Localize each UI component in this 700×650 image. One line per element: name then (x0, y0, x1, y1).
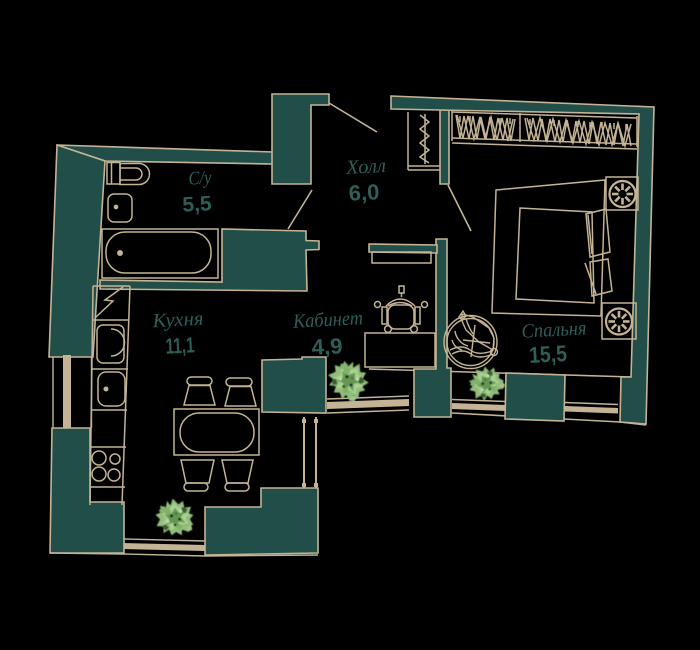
svg-text:Кабинет: Кабинет (292, 307, 364, 333)
svg-text:Спальня: Спальня (521, 317, 587, 342)
svg-text:Кухня: Кухня (151, 308, 204, 333)
svg-text:15,5: 15,5 (528, 340, 567, 368)
svg-text:5,5: 5,5 (182, 192, 213, 217)
svg-text:Холл: Холл (344, 155, 386, 179)
svg-text:С/у: С/у (188, 167, 213, 189)
svg-text:6,0: 6,0 (348, 179, 380, 206)
svg-text:4,9: 4,9 (311, 333, 343, 360)
svg-text:11,1: 11,1 (165, 332, 195, 358)
